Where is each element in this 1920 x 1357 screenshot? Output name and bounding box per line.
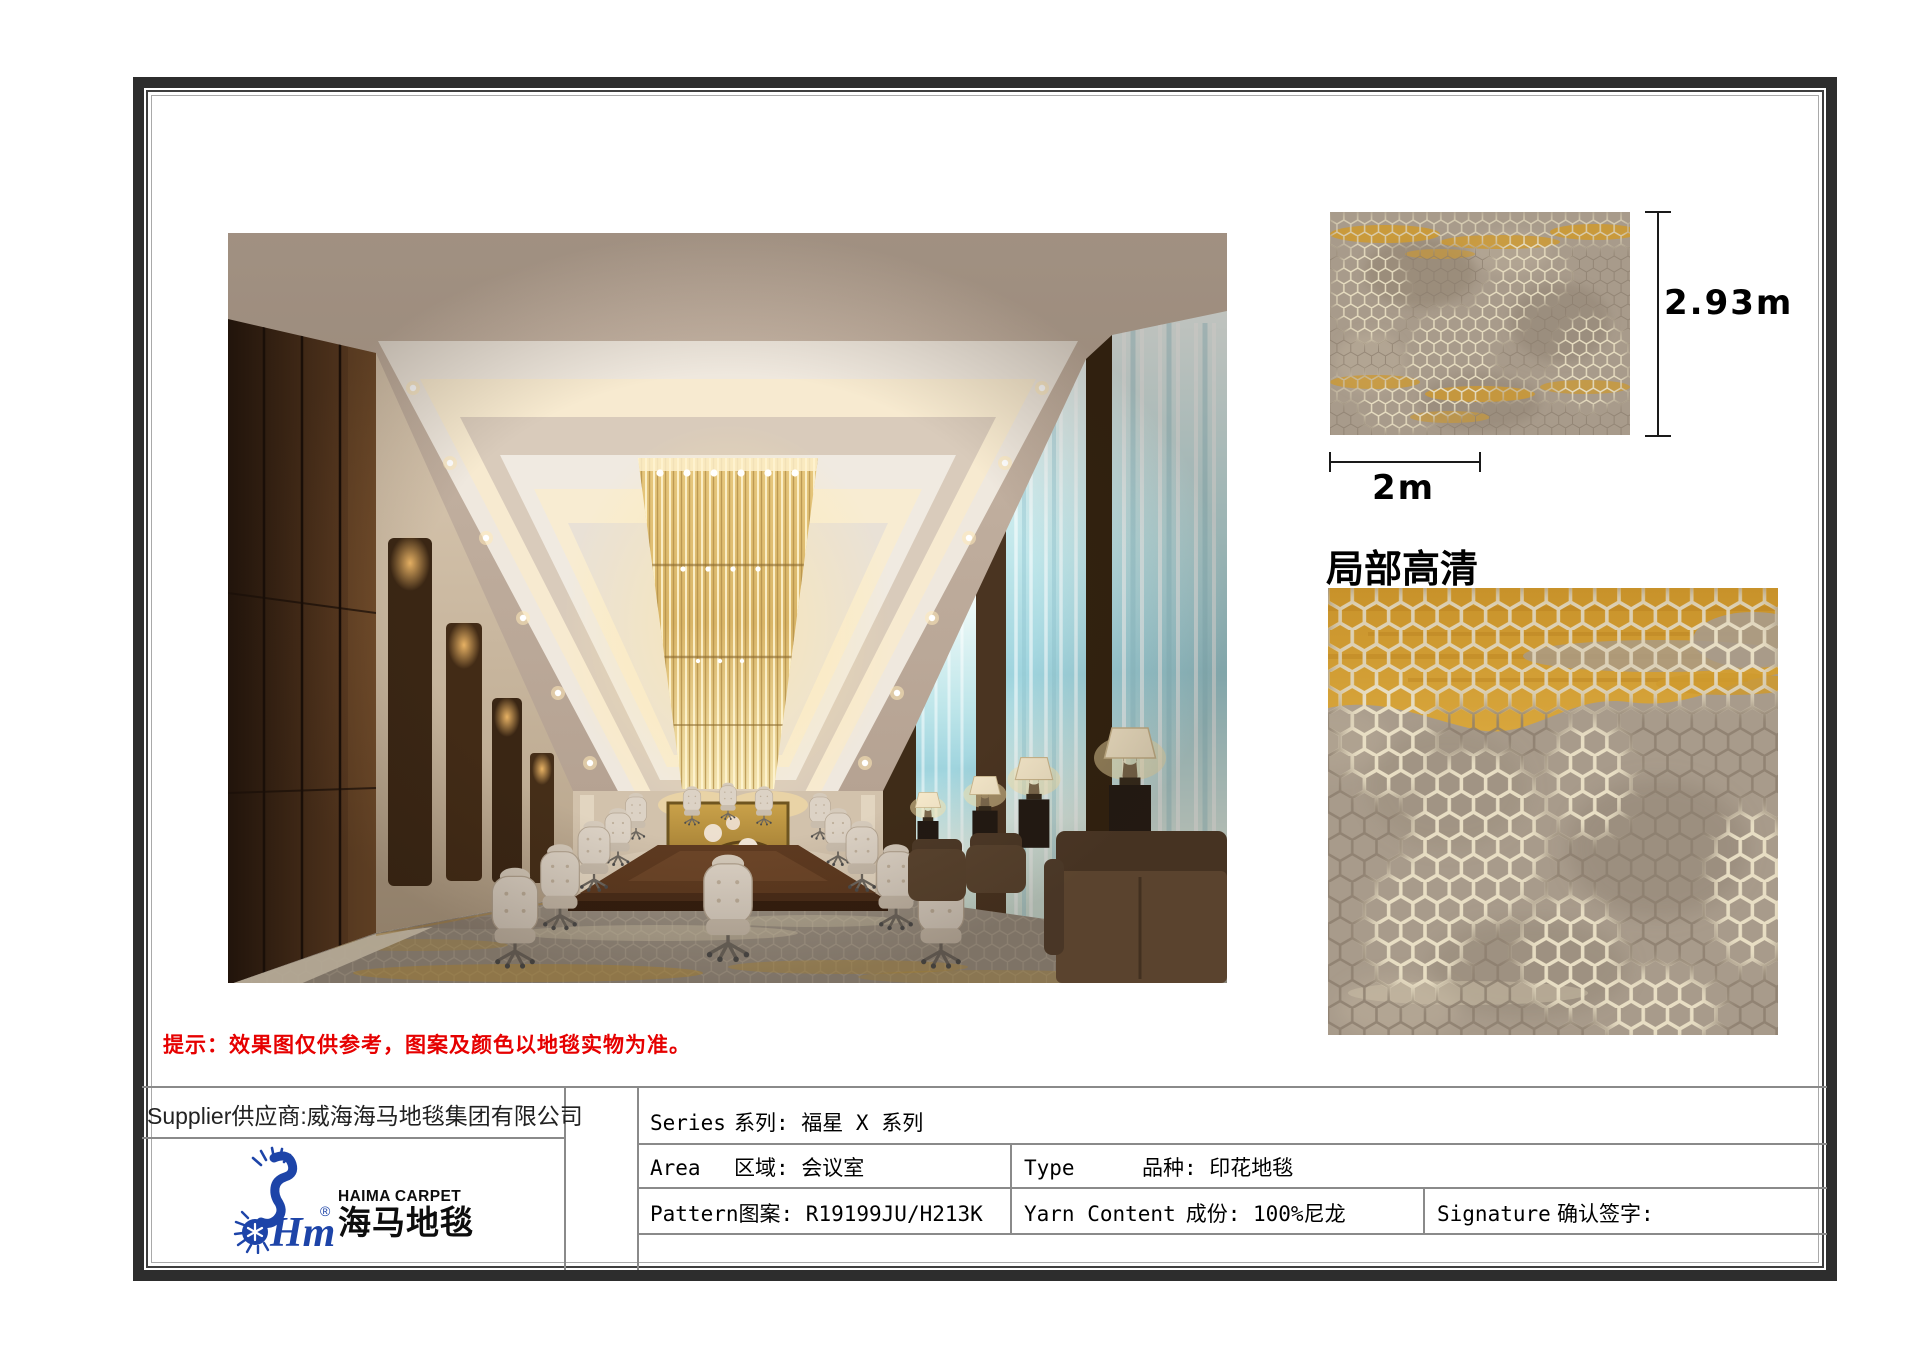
- series-label-en: Series: [650, 1110, 734, 1136]
- table-line: [142, 1137, 566, 1139]
- signature-label-en: Signature: [1437, 1201, 1557, 1227]
- height-dimension-line: [1640, 206, 1680, 442]
- series-cell: Series 系列: 福星 X 系列: [650, 1110, 923, 1136]
- table-line: [637, 1187, 1827, 1189]
- seahorse-logo-icon: Hm ®: [228, 1146, 336, 1254]
- table-line: [1010, 1143, 1012, 1235]
- pattern-cell: Pattern 图案: R19199JU/H213K: [650, 1201, 983, 1227]
- series-value: 系列: 福星 X 系列: [734, 1110, 923, 1136]
- area-label-en: Area: [650, 1155, 734, 1181]
- signature-value: 确认签字:: [1557, 1201, 1654, 1227]
- width-dimension-label: 2m: [1372, 468, 1435, 508]
- logo-brand-cn: 海马地毯: [338, 1206, 474, 1240]
- pattern-label-en: Pattern: [650, 1201, 739, 1227]
- table-line: [1423, 1187, 1425, 1235]
- yarn-content-cell: Yarn Content 成份: 100%尼龙: [1024, 1201, 1346, 1227]
- area-cell: Area 区域: 会议室: [650, 1155, 864, 1181]
- table-line: [637, 1233, 1827, 1235]
- type-value: 品种: 印花地毯: [1142, 1155, 1293, 1181]
- haima-logo: Hm ® HAIMA CARPET 海马地毯: [228, 1146, 488, 1254]
- table-line: [637, 1086, 639, 1270]
- table-line: [637, 1143, 1827, 1145]
- carpet-swatch-image: [1330, 212, 1630, 435]
- height-dimension-label: 2.93m: [1664, 283, 1793, 323]
- supplier-label: Supplier供应商:威海海马地毯集团有限公司: [147, 1097, 583, 1131]
- table-line: [142, 1086, 1827, 1088]
- type-label-en: Type: [1024, 1155, 1142, 1181]
- yarn-content-label-en: Yarn Content: [1024, 1201, 1176, 1227]
- carpet-detail-image: [1328, 588, 1778, 1035]
- room-render-scene: [228, 233, 1227, 983]
- registered-mark-icon: ®: [320, 1203, 331, 1219]
- spec-sheet: 2.93m 2m 局部高清: [0, 0, 1920, 1357]
- logo-wordmark: HAIMA CARPET 海马地毯: [338, 1188, 474, 1240]
- type-cell: Type 品种: 印花地毯: [1024, 1155, 1293, 1181]
- room-render-photo: [228, 233, 1227, 983]
- yarn-content-value: 成份: 100%尼龙: [1186, 1201, 1346, 1227]
- signature-cell: Signature 确认签字:: [1437, 1201, 1654, 1227]
- area-value: 区域: 会议室: [734, 1155, 864, 1181]
- pattern-value: 图案: R19199JU/H213K: [739, 1201, 983, 1227]
- detail-section-title: 局部高清: [1326, 538, 1478, 593]
- disclaimer-notice: 提示：效果图仅供参考，图案及颜色以地毯实物为准。: [163, 1029, 691, 1059]
